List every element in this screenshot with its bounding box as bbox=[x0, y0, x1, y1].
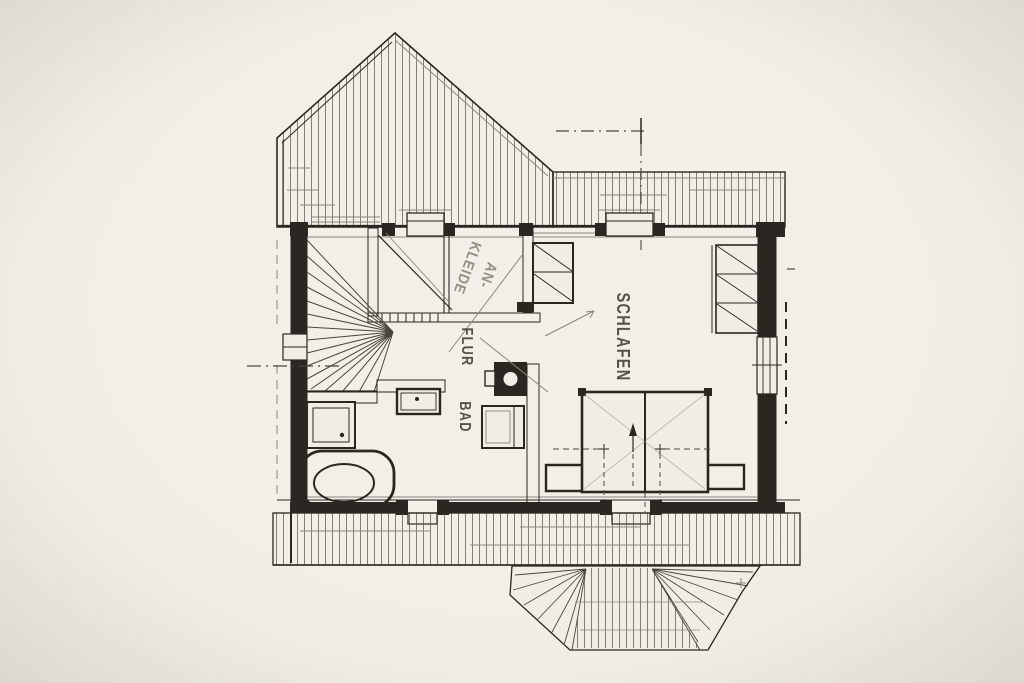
stairwell-bottom-wall bbox=[368, 313, 540, 322]
room-label-flur: FLUR bbox=[458, 327, 476, 366]
washbasin-drain bbox=[415, 397, 419, 401]
double-bed bbox=[578, 388, 712, 492]
stairwell-left-wall bbox=[368, 228, 378, 316]
top-wall-window-2 bbox=[599, 210, 660, 236]
room-label-schlafen: SCHLAFEN bbox=[613, 293, 634, 382]
partition-walls bbox=[307, 228, 539, 503]
stairwell-corner-post bbox=[517, 302, 534, 312]
wardrobe-right-wall bbox=[712, 245, 758, 333]
washbasin bbox=[397, 389, 440, 414]
door-arrow-schlafen bbox=[545, 311, 594, 336]
dormer-roof bbox=[510, 566, 760, 650]
shower-drain bbox=[340, 433, 344, 437]
bathroom-fixtures bbox=[300, 389, 524, 507]
roof-top bbox=[277, 33, 785, 227]
nightstand-right bbox=[708, 465, 744, 489]
bedroom-furniture bbox=[533, 243, 758, 512]
nightstand-left bbox=[546, 465, 582, 491]
bathtub bbox=[300, 451, 394, 507]
chimney bbox=[485, 362, 527, 396]
floor-plan-drawing: SCHLAFEN FLUR BAD AN- KLEIDE bbox=[0, 0, 1024, 683]
stair-break-line-2 bbox=[386, 233, 449, 302]
photographed-floor-plan: SCHLAFEN FLUR BAD AN- KLEIDE bbox=[0, 0, 1024, 683]
room-label-ankleide-line2: KLEIDE bbox=[450, 239, 485, 296]
stair-tread-ticks bbox=[382, 313, 438, 322]
left-wall-window bbox=[283, 334, 307, 360]
room-label-bad: BAD bbox=[456, 401, 474, 432]
gable-roof-face bbox=[277, 33, 553, 227]
wardrobe-ankleide bbox=[533, 243, 573, 303]
bad-schlafen-wall bbox=[527, 364, 539, 503]
room-label-ankleide-line1: AN- bbox=[475, 260, 500, 291]
ankleide-schlafen-wall bbox=[523, 228, 533, 312]
chimney-cleanout bbox=[485, 371, 495, 386]
right-wall-window bbox=[752, 337, 782, 394]
bedpost-right bbox=[704, 388, 712, 396]
room-label-ankleide: AN- KLEIDE bbox=[450, 239, 505, 304]
eave-band-right bbox=[553, 172, 785, 227]
roof-bottom bbox=[273, 513, 800, 650]
stair-break-line bbox=[378, 235, 452, 310]
wc-toilet bbox=[482, 406, 524, 448]
winder-treads-fan bbox=[307, 240, 393, 392]
eave-band-bottom bbox=[273, 513, 800, 565]
shower bbox=[307, 402, 355, 448]
